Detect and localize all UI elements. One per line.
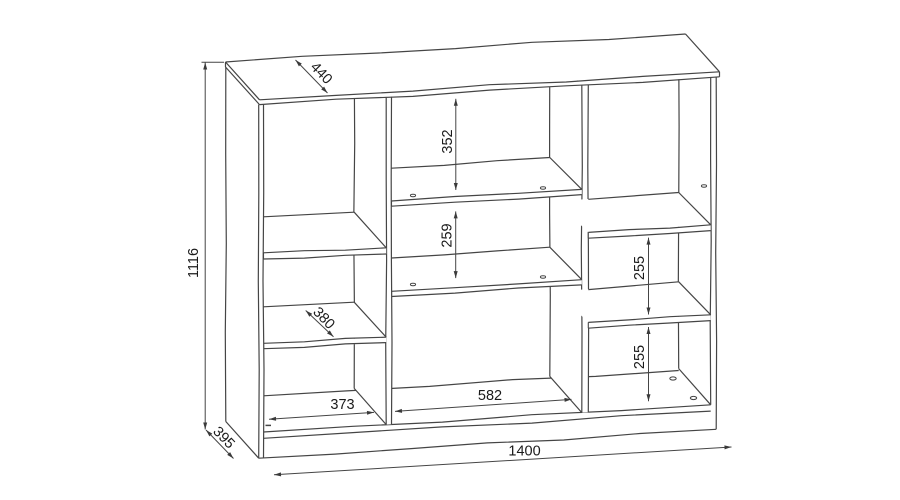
svg-text:582: 582: [478, 388, 502, 404]
svg-text:259: 259: [439, 223, 455, 247]
svg-text:255: 255: [632, 256, 648, 280]
svg-text:1400: 1400: [508, 444, 540, 460]
svg-text:1116: 1116: [186, 248, 202, 278]
svg-text:352: 352: [440, 129, 456, 153]
svg-text:373: 373: [330, 397, 354, 413]
svg-text:255: 255: [632, 345, 648, 369]
